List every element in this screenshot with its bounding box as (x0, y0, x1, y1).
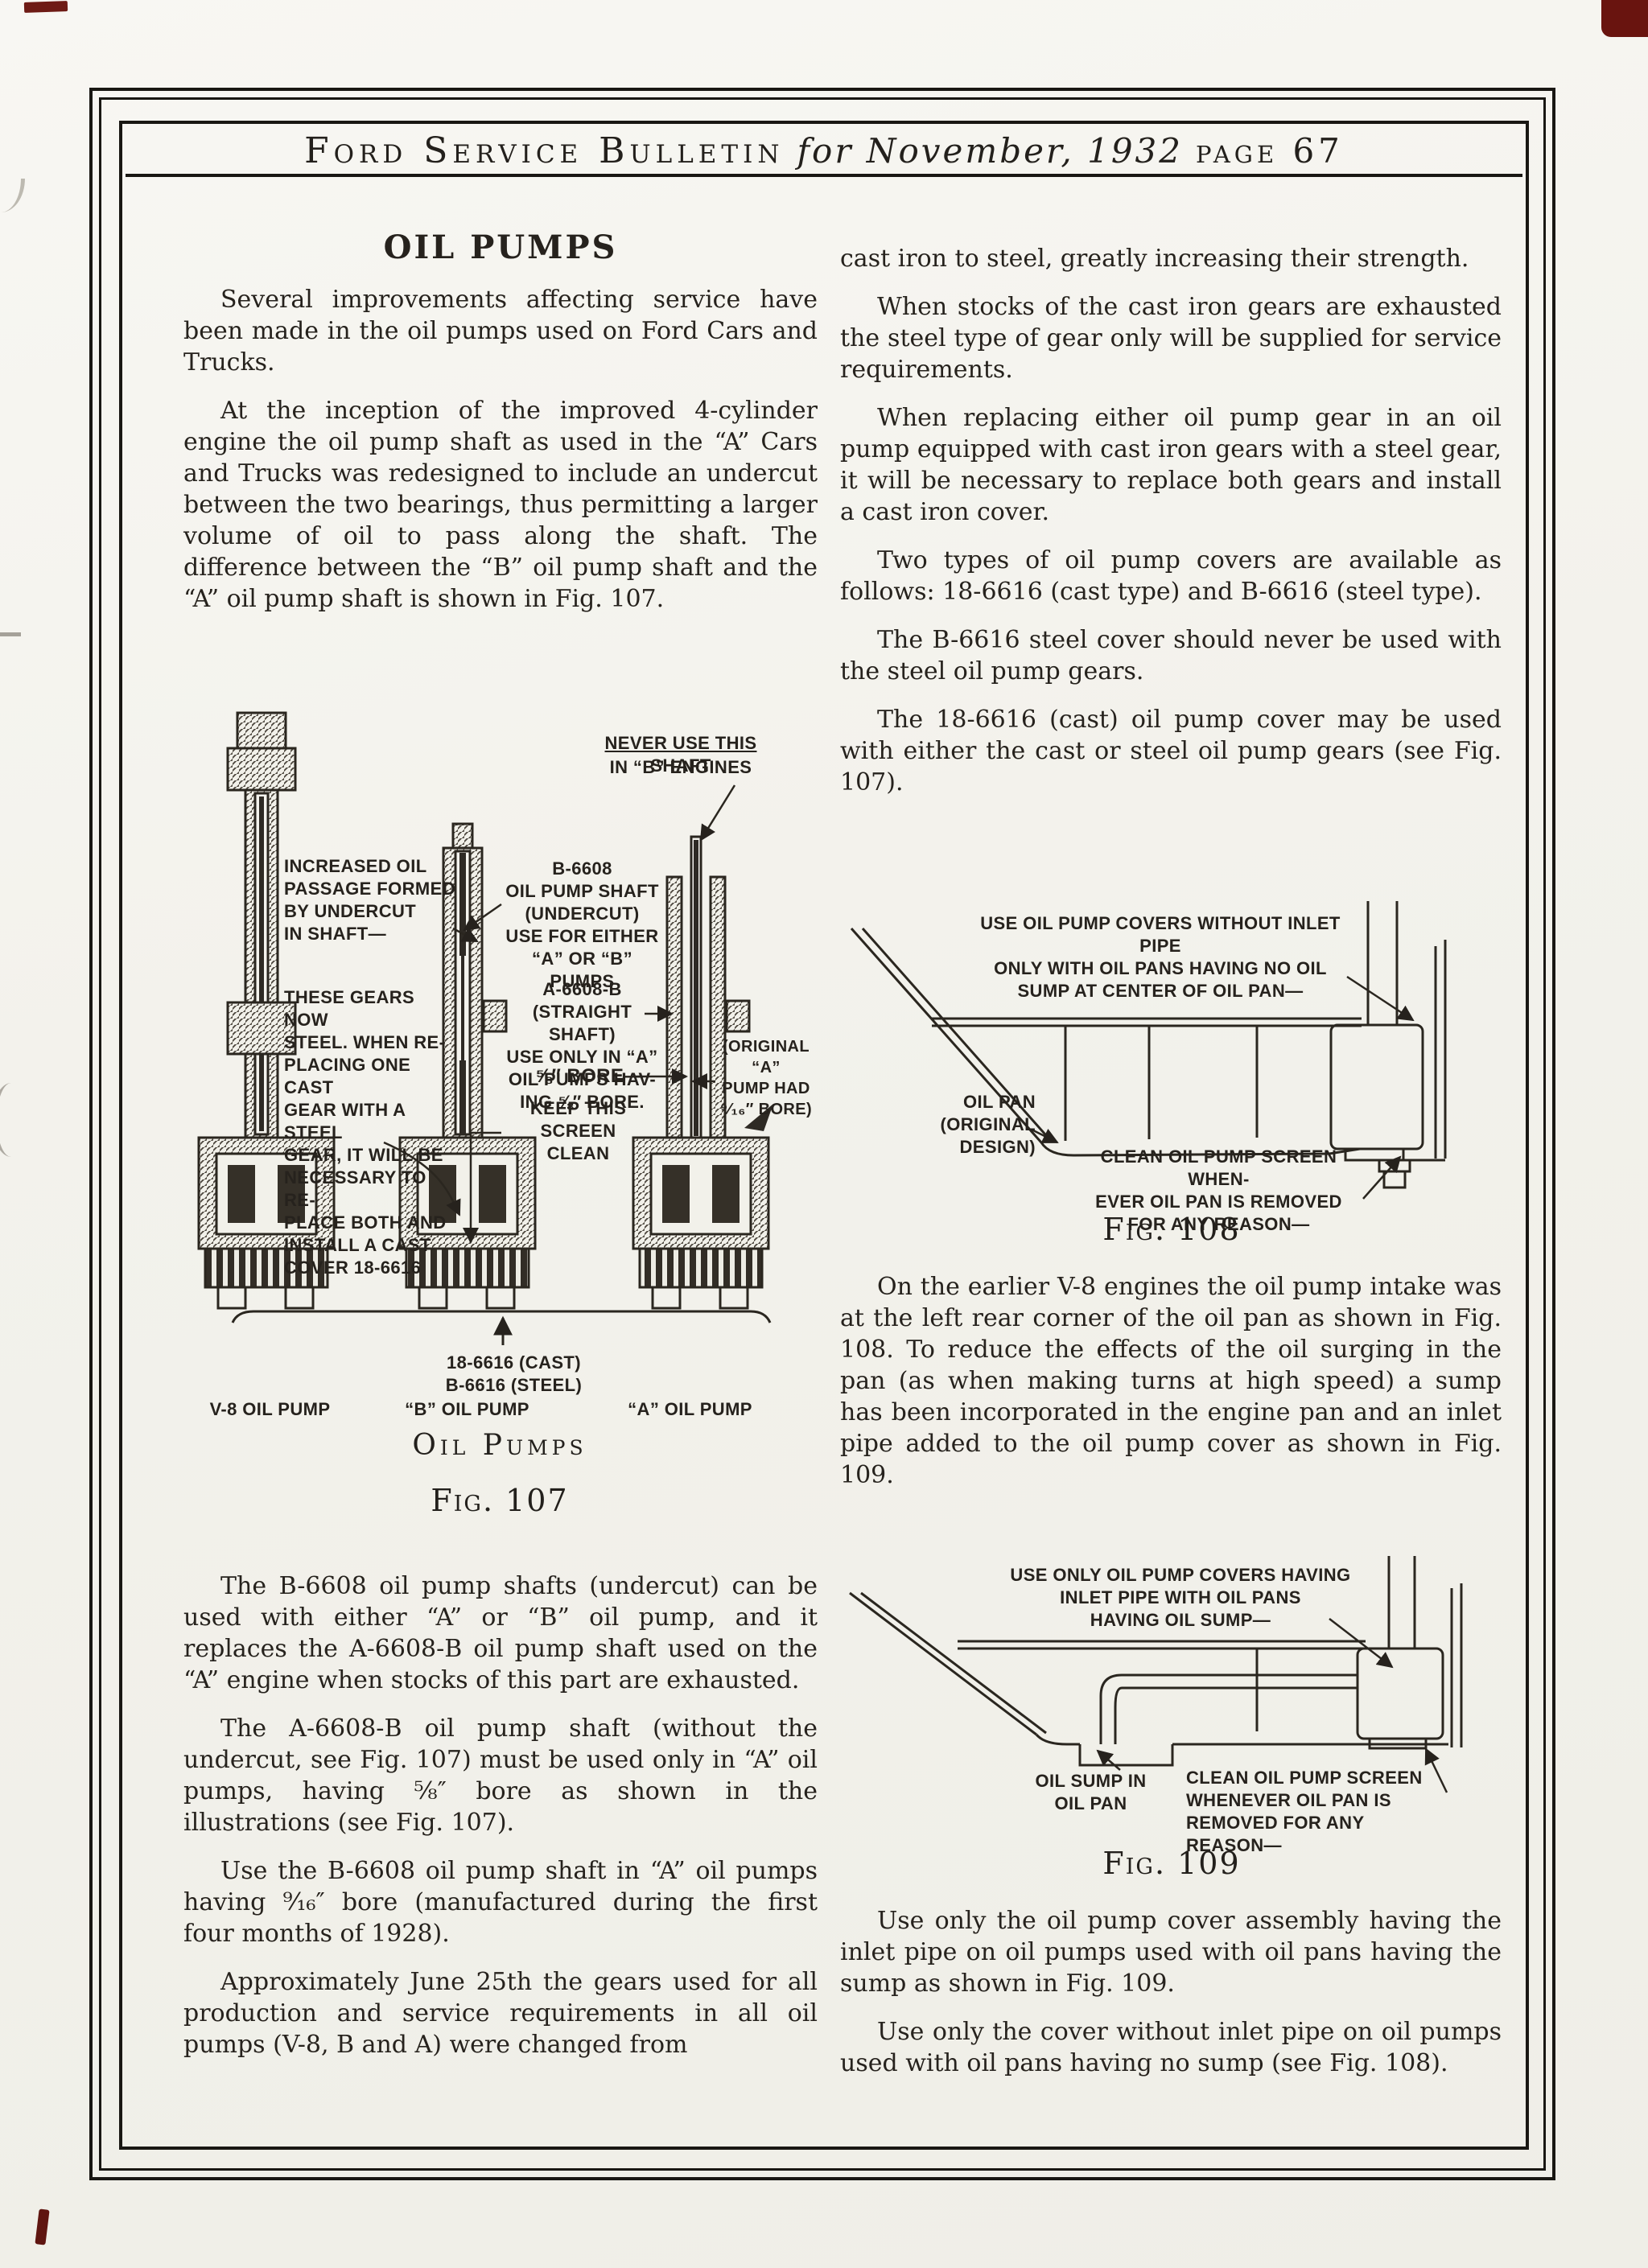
figure-107: NEVER USE THIS SHAFT IN “B” ENGINES INCR… (181, 690, 818, 1523)
left-column-top: OIL PUMPS Several improvements affecting… (183, 232, 818, 632)
red-stamp-mark (1601, 0, 1648, 37)
paragraph: The B-6616 steel cover should never be u… (840, 624, 1502, 687)
margin-scan-mark (0, 632, 21, 636)
paragraph: Several improvements affecting service h… (183, 284, 818, 378)
paragraph: Approximately June 25th the gears used f… (183, 1966, 818, 2060)
right-column-bottom: Use only the oil pump cover assembly hav… (840, 1905, 1502, 2096)
paragraph: When stocks of the cast iron gears are e… (840, 291, 1502, 385)
red-stamp-mark (24, 1, 68, 13)
paragraph: Two types of oil pump covers are availab… (840, 545, 1502, 607)
masthead-page-number: page 67 (1196, 131, 1344, 171)
masthead-issue: for November, 1932 (797, 131, 1183, 171)
fig107-label-steel-gears-note: THESE GEARS NOW STEEL. WHEN RE- PLACING … (284, 986, 453, 1279)
fig107-label-b6608-shaft: B-6608 OIL PUMP SHAFT (UNDERCUT) USE FOR… (500, 858, 665, 993)
fig109-label-oil-sump: OIL SUMP IN OIL PAN (1020, 1770, 1161, 1815)
paragraph: On the earlier V-8 engines the oil pump … (840, 1271, 1502, 1491)
left-column-bottom: The B-6608 oil pump shafts (undercut) ca… (183, 1570, 818, 2077)
bulletin-page: Ford Service Bulletin for November, 1932… (0, 0, 1648, 2268)
fig107-label-v8-oil-pump: V-8 OIL PUMP (196, 1398, 344, 1421)
paragraph: At the inception of the improved 4-cylin… (183, 395, 818, 615)
fig107-label-never-use-line2: IN “B” ENGINES (572, 756, 789, 779)
masthead-title: Ford Service Bulletin (304, 130, 784, 171)
right-column-top: cast iron to steel, greatly increasing t… (840, 243, 1502, 815)
figure-108: USE OIL PUMP COVERS WITHOUT INLET PIPE O… (838, 899, 1505, 1247)
fig107-label-a-oil-pump: “A” OIL PUMP (620, 1398, 760, 1421)
fig107-label-bore: ⅝″ BORE— (535, 1065, 648, 1088)
margin-scan-mark (0, 179, 25, 212)
fig107-caption-number: Fig. 107 (181, 1483, 818, 1518)
fig108-label-oil-pan-original: OIL PAN (ORIGINAL DESIGN) (871, 1091, 1036, 1159)
fig109-caption-number: Fig. 109 (838, 1846, 1505, 1881)
fig107-label-original-a-bore: (ORIGINAL “A” PUMP HAD ⁹⁄₁₆″ BORE) (714, 1036, 818, 1120)
paragraph: The A-6608-B oil pump shaft (without the… (183, 1713, 818, 1838)
paragraph: Use only the oil pump cover assembly hav… (840, 1905, 1502, 1999)
fig107-label-keep-screen-clean: KEEP THIS SCREEN CLEAN (492, 1097, 665, 1165)
paragraph: Use the B-6608 oil pump shaft in “A” oil… (183, 1855, 818, 1949)
fig107-label-cover-part-numbers: 18-6616 (CAST) B-6616 (STEEL) (419, 1352, 608, 1397)
fig108-label-covers-without-inlet: USE OIL PUMP COVERS WITHOUT INLET PIPE O… (959, 912, 1362, 1002)
right-column-middle: On the earlier V-8 engines the oil pump … (840, 1271, 1502, 1508)
paragraph: Use only the cover without inlet pipe on… (840, 2016, 1502, 2079)
fig107-label-increased-oil-passage: INCREASED OIL PASSAGE FORMED BY UNDERCUT… (284, 855, 461, 945)
figure-109: USE ONLY OIL PUMP COVERS HAVING INLET PI… (838, 1554, 1505, 1892)
paragraph: When replacing either oil pump gear in a… (840, 402, 1502, 528)
fig107-caption-title: Oil Pumps (181, 1429, 818, 1462)
margin-scan-mark (0, 1083, 31, 1157)
fig107-label-a6608b-shaft: A-6608-B (STRAIGHT SHAFT) USE ONLY IN “A… (500, 978, 665, 1113)
article-title: OIL PUMPS (183, 232, 818, 263)
fig109-label-clean-screen: CLEAN OIL PUMP SCREEN WHENEVER OIL PAN I… (1186, 1767, 1440, 1857)
fig108-caption-number: Fig. 108 (838, 1212, 1505, 1247)
paragraph: cast iron to steel, greatly increasing t… (840, 243, 1502, 274)
paragraph: The B-6608 oil pump shafts (undercut) ca… (183, 1570, 818, 1696)
paragraph: The 18-6616 (cast) oil pump cover may be… (840, 704, 1502, 798)
fig109-label-covers-with-inlet: USE ONLY OIL PUMP COVERS HAVING INLET PI… (987, 1564, 1374, 1632)
red-stamp-mark (35, 2208, 49, 2245)
masthead: Ford Service Bulletin for November, 1932… (126, 127, 1522, 177)
fig107-label-b-oil-pump: “B” OIL PUMP (397, 1398, 538, 1421)
